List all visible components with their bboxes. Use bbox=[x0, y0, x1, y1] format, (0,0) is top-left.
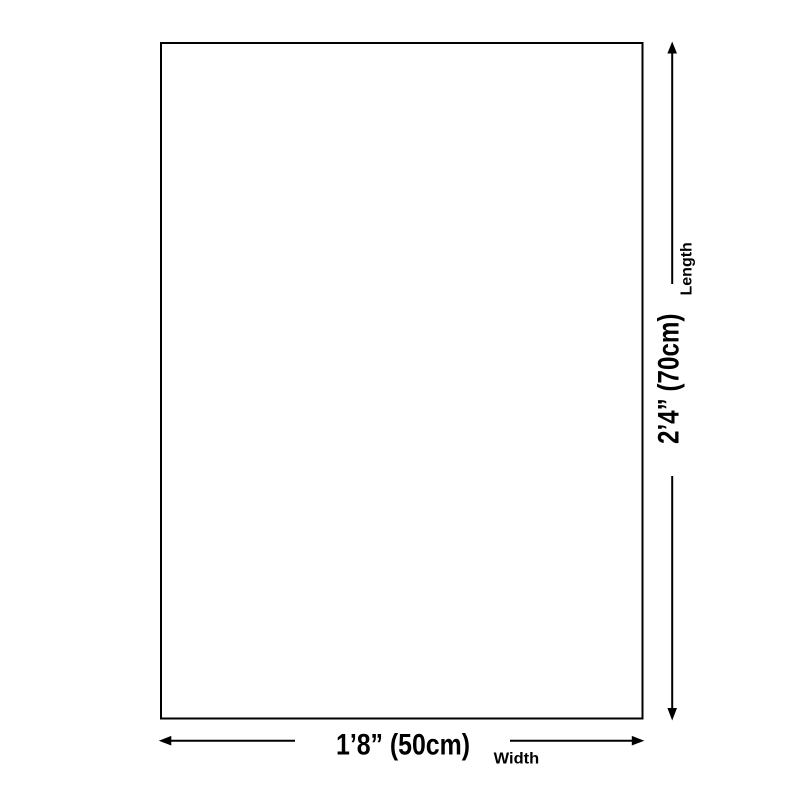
svg-text:Length: Length bbox=[678, 242, 695, 295]
svg-text:2’4” (70cm): 2’4” (70cm) bbox=[651, 314, 685, 444]
svg-text:1’8” (50cm): 1’8” (50cm) bbox=[336, 729, 470, 762]
svg-text:Width: Width bbox=[494, 750, 540, 767]
